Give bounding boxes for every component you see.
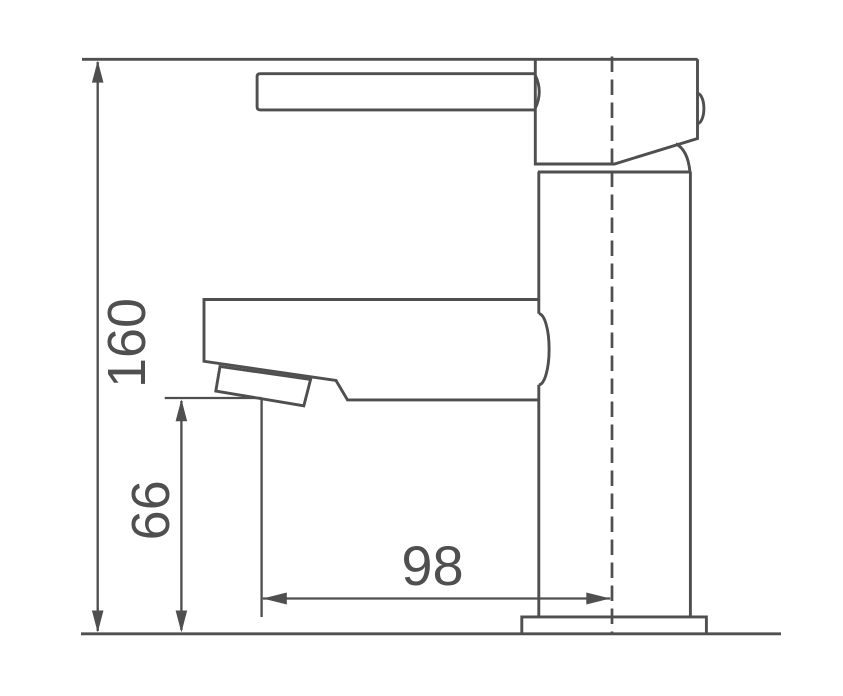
svg-text:98: 98 — [401, 534, 463, 597]
svg-text:66: 66 — [121, 480, 181, 540]
svg-text:160: 160 — [97, 298, 157, 388]
